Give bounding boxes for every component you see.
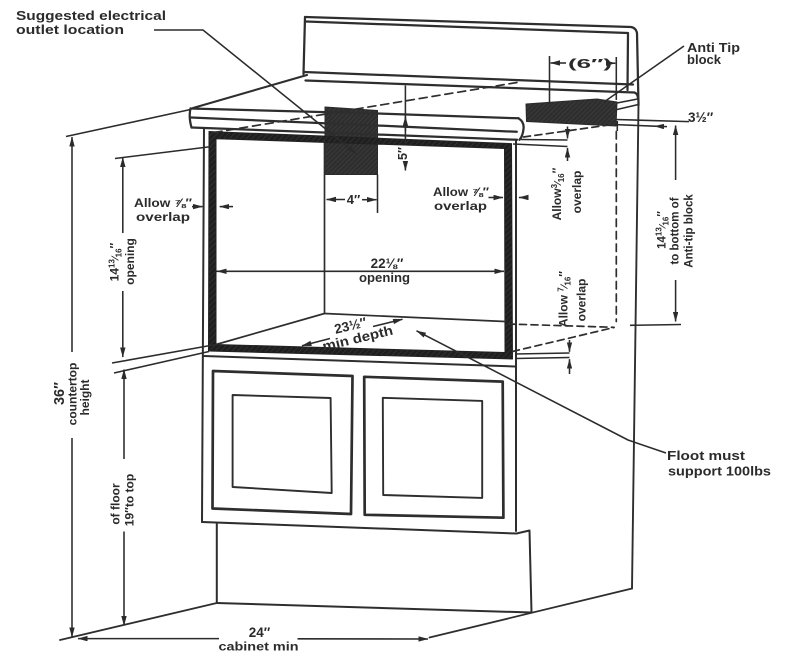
svg-text:opening: opening (359, 270, 410, 285)
svg-text:overlap: overlap (570, 171, 584, 214)
svg-text:support 100lbs: support 100lbs (668, 465, 771, 479)
svg-text:block: block (687, 53, 721, 67)
svg-text:Suggested electrical: Suggested electrical (16, 9, 166, 23)
svg-text:Anti-tip block: Anti-tip block (684, 194, 696, 268)
svg-text:Allow 7⁄16′′: Allow 7⁄16′′ (557, 271, 573, 327)
svg-text:1413⁄16′′: 1413⁄16′′ (655, 211, 671, 249)
svg-text:4′′: 4′′ (347, 192, 360, 207)
svg-text:outlet location: outlet location (16, 23, 124, 37)
svg-text:1413⁄16′′: 1413⁄16′′ (108, 243, 124, 282)
svg-text:Floot must: Floot must (667, 449, 746, 463)
svg-text:height: height (78, 380, 92, 416)
svg-text:to bottom of: to bottom of (670, 197, 682, 264)
svg-text:Allow ⅞′′: Allow ⅞′′ (433, 185, 489, 199)
svg-text:3½′′: 3½′′ (688, 110, 713, 125)
svg-text:(6′′): (6′′) (568, 56, 612, 71)
svg-text:cabinet min: cabinet min (219, 640, 299, 654)
svg-text:19′′to top: 19′′to top (122, 474, 136, 526)
svg-text:22⅛′′: 22⅛′′ (371, 256, 404, 271)
svg-text:overlap: overlap (136, 210, 190, 224)
svg-text:24′′: 24′′ (249, 625, 271, 640)
svg-text:overlap: overlap (575, 279, 589, 322)
svg-text:overlap: overlap (434, 199, 487, 213)
svg-text:5′′: 5′′ (396, 147, 410, 160)
svg-text:Allow3⁄16′′: Allow3⁄16′′ (550, 167, 566, 220)
svg-text:of floor: of floor (108, 483, 122, 525)
svg-text:Allow ⅞′′: Allow ⅞′′ (134, 196, 192, 210)
svg-text:opening: opening (123, 238, 137, 285)
